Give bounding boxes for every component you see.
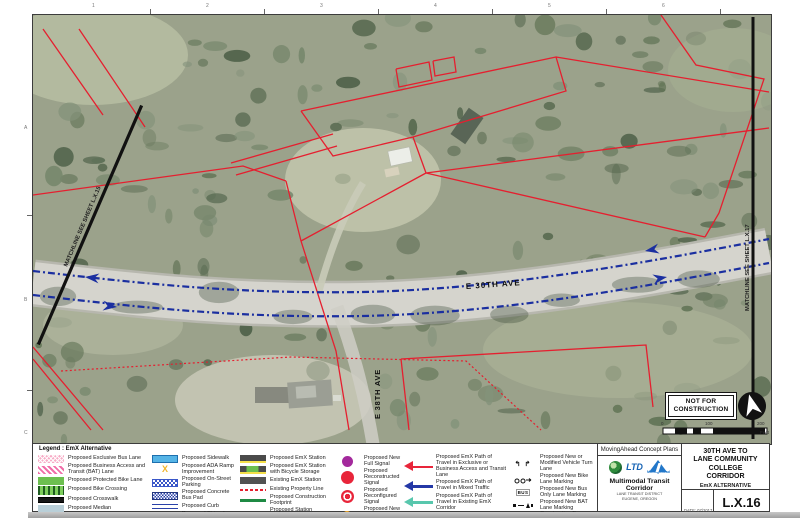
ltd-logo-icon: LTD <box>626 462 643 472</box>
tree-blob <box>58 103 81 121</box>
tree-blob <box>714 299 726 309</box>
legend-item: Proposed Construction Footprint <box>239 495 331 507</box>
legend: Legend : EmX Alternative Proposed Exclus… <box>33 444 598 511</box>
project-title: 30TH AVE TO LANE COMMUNITY COLLEGE CORRI… <box>682 444 769 489</box>
swatch-emx-path-exclusive-arrow <box>413 466 433 469</box>
aerial-photo-canvas: MATCHLINE SEE SHEET L.X.15 MATCHLINE SEE… <box>33 15 771 444</box>
legend-column-4: Proposed New Full Signal Proposed Recons… <box>333 455 403 518</box>
legend-column-5: Proposed EmX Path of Travel in Exclusive… <box>405 455 507 518</box>
legend-item: Proposed New Bike Lane Marking <box>509 474 595 486</box>
grid-ref-number: 5 <box>548 3 551 9</box>
tree-blob <box>485 386 493 405</box>
legend-item-label: Proposed Bike Crossing <box>68 487 149 493</box>
tree-blob <box>616 36 626 45</box>
project-title-line: LANE COMMUNITY COLLEGE <box>682 456 769 473</box>
tree-shadow-blob <box>199 282 239 303</box>
tree-blob <box>54 147 74 167</box>
not-for-construction-stamp: NOT FOR CONSTRUCTION <box>665 392 737 420</box>
legend-column-6: ↰ ↱Proposed New or Modified Vehicle Turn… <box>509 455 595 518</box>
legend-item: Proposed EmX Station <box>239 455 331 463</box>
project-title-line: CORRIDOR <box>682 473 769 481</box>
tree-blob <box>409 392 420 407</box>
grid-ref-number: 3 <box>320 3 323 9</box>
legend-item: Proposed EmX Path of Travel in Mixed Tra… <box>405 480 507 493</box>
matchline-right-label: MATCHLINE SEE SHEET L.X.17 <box>745 224 751 311</box>
tree-blob <box>330 123 342 131</box>
legend-column-3: Proposed EmX Station Proposed EmX Statio… <box>239 455 331 518</box>
tree-blob <box>311 84 322 91</box>
agency-city: EUGENE, OREGON <box>622 497 657 502</box>
swatch-emx-station <box>240 455 266 463</box>
grid-ref-number: 6 <box>662 3 665 9</box>
legend-item: Proposed EmX Station with Bicycle Storag… <box>239 464 331 476</box>
legend-item-label: Proposed EmX Path of Travel in Mixed Tra… <box>436 480 507 492</box>
swatch-protected-bike-lane <box>38 477 64 485</box>
tree-blob <box>203 41 227 51</box>
legend-item: Existing Property Line <box>239 486 331 494</box>
tree-shadow-blob <box>543 294 580 307</box>
sheet-number: L.X.16 <box>714 490 769 515</box>
legend-item-label: Proposed Protected Bike Lane <box>68 478 149 484</box>
tree-blob <box>235 131 255 141</box>
tree-blob <box>428 327 437 347</box>
project-title-line: 30TH AVE TO <box>682 448 769 456</box>
tree-blob <box>200 220 214 238</box>
tree-blob <box>236 69 244 76</box>
swatch-emx-path-existing-arrow <box>413 501 433 504</box>
legend-item-label: Proposed Reconstructed Signal <box>364 469 403 487</box>
tree-blob <box>145 142 169 151</box>
tree-blob <box>475 48 487 54</box>
tree-blob <box>53 411 68 424</box>
bus-only-marking-icon: BUS <box>516 489 531 496</box>
tree-blob <box>235 112 250 126</box>
tree-blob <box>634 392 657 401</box>
tree-blob <box>546 173 566 181</box>
tree-blob <box>719 180 743 189</box>
legend-item-label: Proposed Business Access and Transit (BA… <box>68 464 149 476</box>
tree-shadow-blob <box>410 306 459 326</box>
legend-item: ↰ ↱Proposed New or Modified Vehicle Turn… <box>509 455 595 473</box>
legend-item: Proposed Curb <box>151 503 237 511</box>
legend-item: BUSProposed New Bus Only Lane Marking <box>509 487 595 499</box>
tree-blob <box>686 32 706 46</box>
legend-item: Proposed On-Street Parking <box>151 477 237 489</box>
legend-item-label: Proposed Sidewalk <box>182 456 237 462</box>
legend-item-label: Proposed Construction Footprint <box>270 495 331 507</box>
tree-blob <box>576 32 593 50</box>
legend-item: Proposed Reconfigured Signal <box>333 488 403 506</box>
agency-logos: LTD MovingAhead <box>609 457 670 477</box>
legend-item-label: Proposed New Bus Only Lane Marking <box>540 487 595 499</box>
tree-blob <box>178 124 204 131</box>
tree-blob <box>65 357 75 369</box>
tree-blob <box>298 85 308 104</box>
tree-blob <box>251 145 268 151</box>
tree-blob <box>632 51 648 58</box>
swatch-curb <box>152 504 178 509</box>
tree-blob <box>98 164 108 172</box>
city-of-eugene-logo-icon <box>609 461 622 474</box>
tree-blob <box>681 306 692 312</box>
tree-blob <box>183 62 192 68</box>
turn-lane-marking-icon: ↰ ↱ <box>515 460 532 468</box>
swatch-bike-crossing <box>38 486 64 495</box>
legend-item-label: Existing Property Line <box>270 487 331 493</box>
swatch-reconfigured-signal <box>341 490 354 503</box>
tree-blob <box>447 146 460 156</box>
titleblock-project: 30TH AVE TO LANE COMMUNITY COLLEGE CORRI… <box>682 444 769 511</box>
stamp-line1: NOT FOR <box>670 398 732 406</box>
tree-blob <box>165 209 172 224</box>
scale-unit: Feet <box>760 430 770 435</box>
tree-blob <box>713 337 740 344</box>
tree-blob <box>364 43 377 50</box>
stamp-line2: CONSTRUCTION <box>670 406 732 414</box>
scale-label: 100 <box>705 421 713 426</box>
tree-blob <box>316 328 327 341</box>
building <box>333 395 341 401</box>
tree-blob <box>83 156 105 164</box>
tree-blob <box>345 261 362 271</box>
legend-item-label: Proposed New Bike Lane Marking <box>540 474 595 486</box>
legend-item-label: Proposed EmX Station with Bicycle Storag… <box>270 464 331 476</box>
tree-blob <box>613 405 623 413</box>
tree-blob <box>148 195 156 213</box>
legend-item-label: Proposed New Full Signal <box>364 456 403 468</box>
legend-item-label: Proposed On-Street Parking <box>182 477 237 489</box>
tree-shadow-blob <box>490 306 528 323</box>
swatch-on-street-parking <box>152 479 178 487</box>
legend-item-label: Proposed Exclusive Bus Lane <box>68 456 149 462</box>
tree-blob <box>535 15 556 35</box>
bike-lane-marking-icon <box>514 476 532 484</box>
tree-blob <box>335 174 351 184</box>
tree-blob <box>198 59 208 67</box>
swatch-exclusive-bus-lane <box>38 455 64 463</box>
legend-item: Proposed EmX Path of Travel in Exclusive… <box>405 455 507 479</box>
tree-blob <box>720 123 727 137</box>
tree-blob <box>336 77 360 89</box>
swatch-sidewalk <box>152 455 178 463</box>
tree-blob <box>554 24 582 37</box>
tree-blob <box>206 193 227 203</box>
tree-blob <box>663 321 677 335</box>
legend-item-label: Proposed Curb <box>182 504 237 510</box>
street-label-e38th: E 38TH AVE <box>373 369 382 419</box>
bat-lane-marking-icon <box>513 502 533 509</box>
tree-blob <box>194 205 216 220</box>
tree-blob <box>667 146 691 157</box>
legend-item-label: Proposed EmX Path of Travel in Existing … <box>436 494 507 512</box>
legend-item-label: Proposed EmX Station <box>270 456 331 462</box>
tree-blob <box>543 233 553 240</box>
grid-ref-number: 4 <box>434 3 437 9</box>
grid-ref-letter: B <box>24 297 27 303</box>
tree-blob <box>47 396 58 403</box>
tree-blob <box>541 411 551 429</box>
tree-blob <box>390 399 406 416</box>
legend-item: Proposed EmX Path of Travel in Existing … <box>405 494 507 512</box>
tree-blob <box>202 173 217 178</box>
tree-blob <box>535 116 561 131</box>
plan-sheet: 1 2 3 4 5 6 A B C <box>0 0 800 518</box>
tree-blob <box>127 376 148 392</box>
legend-item: Proposed Reconstructed Signal <box>333 469 403 487</box>
tree-blob <box>224 50 251 62</box>
legend-item-label: Proposed EmX Path of Travel in Exclusive… <box>436 455 507 479</box>
movingahead-logo-icon <box>649 460 667 472</box>
tree-blob <box>595 82 605 87</box>
tree-blob <box>468 379 482 391</box>
legend-item-label: Proposed Concrete Bus Pad <box>182 490 237 502</box>
tree-blob <box>121 185 148 193</box>
legend-item-label: Proposed New or Modified Vehicle Turn La… <box>540 455 595 473</box>
swatch-existing-emx-station <box>240 477 266 484</box>
corridor-title: Multimodal Transit Corridor <box>598 478 681 492</box>
sheet-footer: Legend : EmX Alternative Proposed Exclus… <box>32 443 770 512</box>
swatch-ada-ramp: X <box>152 465 178 474</box>
tree-blob <box>415 21 432 32</box>
legend-item: Proposed Crosswalk <box>37 496 149 504</box>
grid-ref-letter: C <box>24 430 28 436</box>
tree-blob <box>45 166 63 187</box>
tree-blob <box>451 419 460 429</box>
tree-blob <box>250 88 266 104</box>
legend-item: Proposed Protected Bike Lane <box>37 477 149 485</box>
swatch-existing-property-line <box>240 489 266 491</box>
tree-blob <box>544 102 555 110</box>
swatch-emx-path-mixed-arrow <box>413 485 433 488</box>
sheet-edge-shadow <box>28 512 800 518</box>
swatch-emx-station-bicycle <box>240 466 266 474</box>
swatch-bat-lane <box>38 466 64 474</box>
building <box>296 385 317 398</box>
tree-blob <box>192 188 199 194</box>
titleblock-agency: MovingAhead Concept Plans LTD MovingAhea… <box>598 444 682 511</box>
tree-blob <box>605 366 621 381</box>
tree-blob <box>723 20 741 29</box>
tree-blob <box>188 40 202 46</box>
grid-ref-number: 1 <box>92 3 95 9</box>
legend-item-label: Proposed Crosswalk <box>68 497 149 503</box>
tree-blob <box>477 132 487 145</box>
legend-item: Proposed New BAT Lane Marking <box>509 500 595 512</box>
tree-blob <box>284 334 306 341</box>
legend-item: Proposed Business Access and Transit (BA… <box>37 464 149 476</box>
swatch-crosswalk <box>38 497 64 503</box>
tree-blob <box>299 47 305 63</box>
swatch-concrete-bus-pad <box>152 492 178 500</box>
grid-ref-number: 2 <box>206 3 209 9</box>
legend-item: Proposed Bike Crossing <box>37 486 149 495</box>
swatch-construction-footprint <box>240 499 266 502</box>
legend-item-label: Existing EmX Station <box>270 478 331 484</box>
legend-item: XProposed ADA Ramp Improvement <box>151 464 237 476</box>
legend-item: Proposed Concrete Bus Pad <box>151 490 237 502</box>
legend-item: Proposed Sidewalk <box>151 455 237 463</box>
tree-blob <box>512 132 534 152</box>
legend-item-label: Proposed New BAT Lane Marking <box>540 500 595 512</box>
legend-item: Proposed Exclusive Bus Lane <box>37 455 149 463</box>
scale-label: 200 <box>757 421 765 426</box>
swatch-new-full-signal <box>342 456 353 467</box>
tree-blob <box>396 235 420 255</box>
legend-column-1: Proposed Exclusive Bus Lane Proposed Bus… <box>37 455 149 518</box>
legend-item: Proposed New Full Signal <box>333 455 403 468</box>
concept-plans-label: MovingAhead Concept Plans <box>598 444 681 456</box>
tree-blob <box>80 387 91 396</box>
tree-blob <box>306 361 329 381</box>
tree-blob <box>215 134 237 142</box>
legend-item-label: Proposed ADA Ramp Improvement <box>182 464 237 476</box>
tree-blob <box>416 367 438 381</box>
tree-blob <box>386 113 398 118</box>
tree-blob <box>513 241 523 260</box>
legend-column-2: Proposed Sidewalk XProposed ADA Ramp Imp… <box>151 455 237 518</box>
legend-item-label: Proposed Reconfigured Signal <box>364 488 403 506</box>
legend-item: Existing EmX Station <box>239 477 331 485</box>
legend-title: Legend : EmX Alternative <box>39 446 111 452</box>
tree-blob <box>408 119 417 136</box>
swatch-reconstructed-signal <box>341 471 354 484</box>
tree-blob <box>643 36 660 44</box>
date-cell: DATE: 07/2017 <box>682 490 714 515</box>
tree-blob <box>498 408 526 413</box>
tree-blob <box>352 20 376 37</box>
tree-blob <box>37 402 43 416</box>
tree-blob <box>670 179 697 194</box>
tree-blob <box>612 164 621 185</box>
tree-blob <box>273 45 290 63</box>
tree-blob <box>643 61 664 72</box>
tree-blob <box>703 183 720 200</box>
tree-blob <box>659 82 666 92</box>
grid-ref-letter: A <box>24 125 27 131</box>
tree-shadow-blob <box>677 270 719 287</box>
building <box>255 387 293 403</box>
aerial-map: MATCHLINE SEE SHEET L.X.15 MATCHLINE SEE… <box>32 14 772 445</box>
